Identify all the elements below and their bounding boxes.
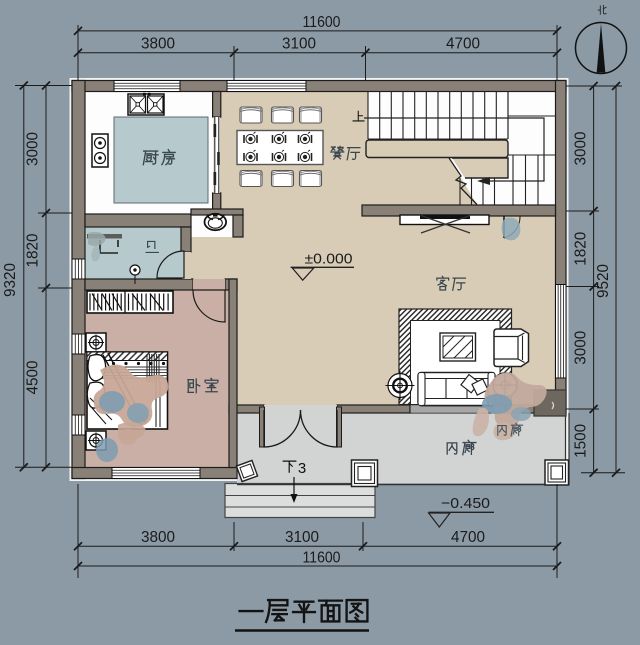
svg-text:3100: 3100 xyxy=(285,529,319,546)
svg-text:±0.000: ±0.000 xyxy=(305,251,353,268)
svg-text:1820: 1820 xyxy=(573,232,590,266)
svg-text:3: 3 xyxy=(298,460,306,477)
svg-text:1500: 1500 xyxy=(573,424,590,458)
svg-text:3000: 3000 xyxy=(25,132,42,166)
svg-text:4500: 4500 xyxy=(25,360,42,394)
svg-text:3000: 3000 xyxy=(573,131,590,165)
svg-text:3000: 3000 xyxy=(573,331,590,365)
svg-text:3800: 3800 xyxy=(141,529,175,546)
svg-text:4700: 4700 xyxy=(451,529,485,546)
svg-text:9320: 9320 xyxy=(2,263,19,297)
svg-text:4700: 4700 xyxy=(446,36,480,53)
svg-text:−0.450: −0.450 xyxy=(441,495,490,512)
svg-text:11600: 11600 xyxy=(303,550,341,567)
svg-text:1820: 1820 xyxy=(25,233,42,267)
svg-text:9520: 9520 xyxy=(595,264,612,298)
svg-text:3100: 3100 xyxy=(282,36,316,53)
svg-text:11600: 11600 xyxy=(303,14,341,31)
svg-text:3800: 3800 xyxy=(141,36,175,53)
